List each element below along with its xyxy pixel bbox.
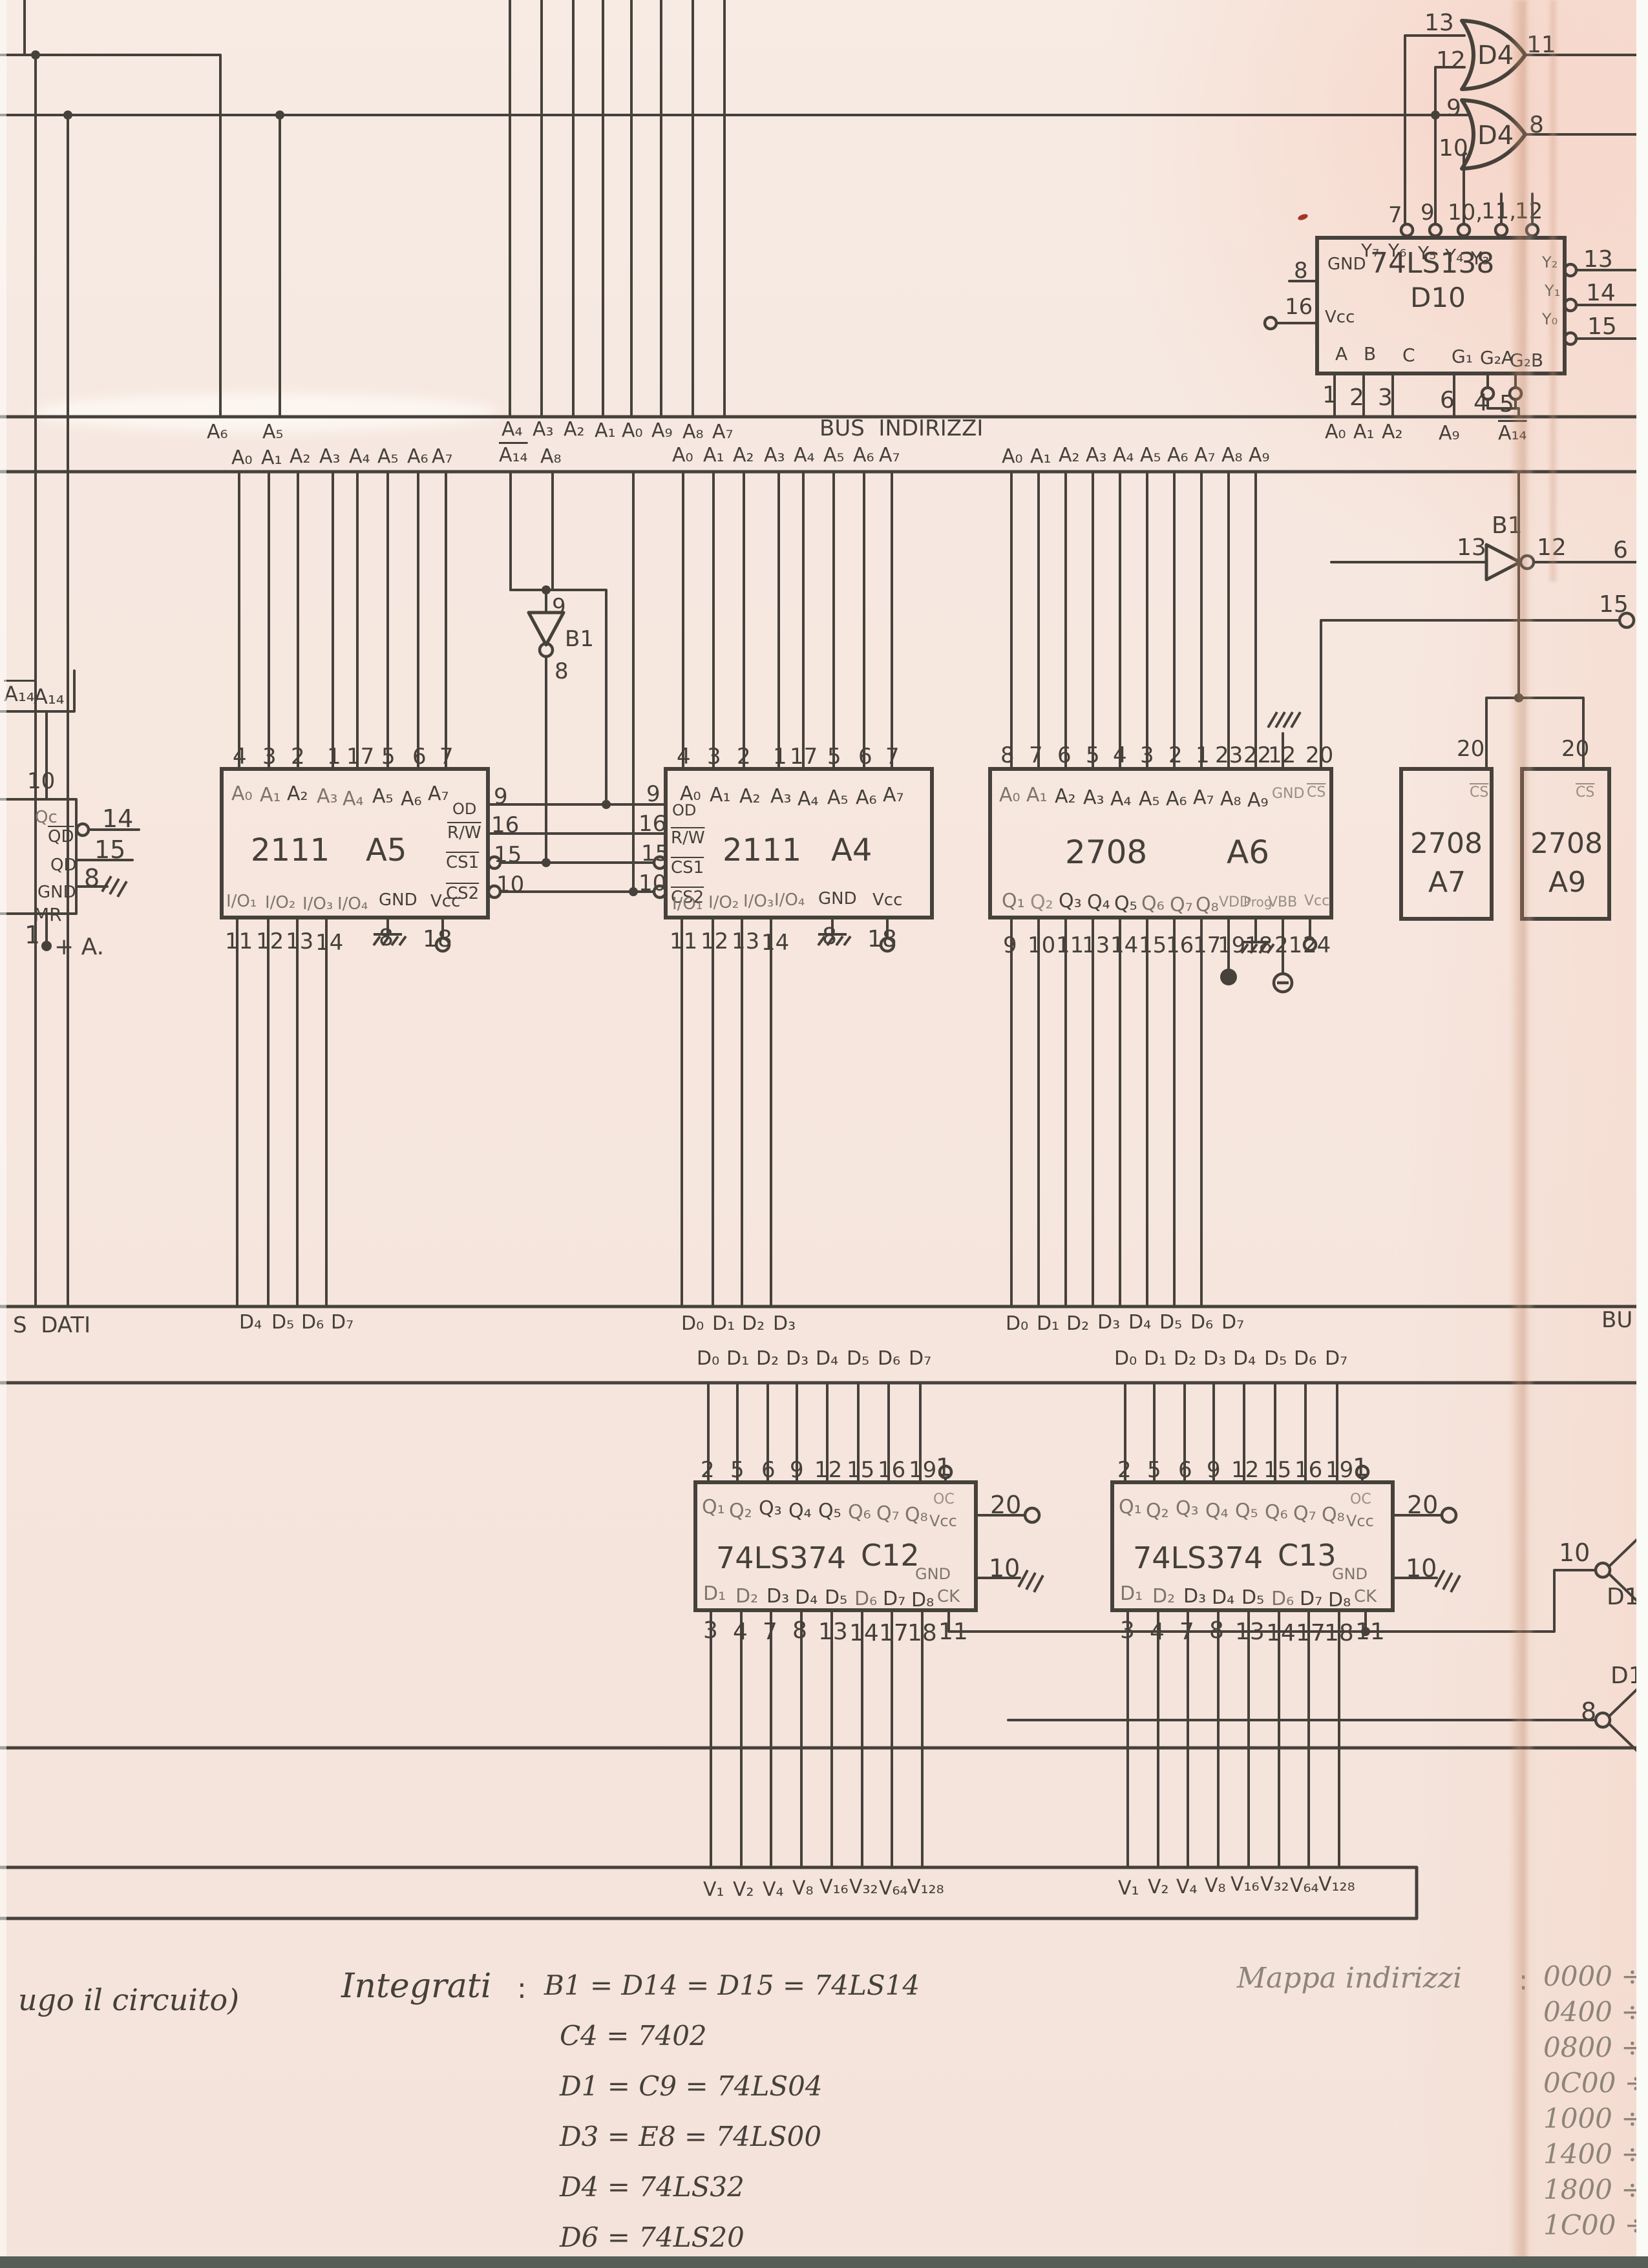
v-label: V₄: [763, 1880, 784, 1900]
c12-d: D₃: [766, 1587, 789, 1606]
map-address: 0C00 ÷: [1543, 2070, 1647, 2097]
bus-d2: D₂: [756, 1349, 779, 1369]
bus-a2: A₄: [794, 446, 815, 465]
c13-bot-pin: 8: [1209, 1619, 1224, 1643]
c13-vcc: Vcc: [1346, 1513, 1374, 1529]
d10-y: Y₁: [1545, 283, 1560, 299]
d10-bot-pin: 6: [1440, 389, 1455, 412]
d10-top-pin: 7: [1388, 204, 1402, 226]
d10-g: G₁: [1452, 348, 1473, 366]
legend-line: D6 = 74LS20: [560, 2224, 745, 2251]
a5-ctl-pin: 15: [494, 844, 522, 866]
inv-d14-pin10: 10: [1559, 1540, 1590, 1565]
a6-top-pin: 4: [1113, 744, 1127, 766]
bus-a2: A₀: [231, 448, 253, 468]
bus-a: A₀: [1325, 423, 1346, 442]
c12-ck: CK: [937, 1588, 960, 1605]
a6-bot-pin: 15: [1139, 934, 1167, 956]
bus-dati-right: BU: [1601, 1309, 1632, 1331]
bus-a2: A₈: [540, 447, 562, 467]
d10-vcc: Vcc: [1325, 309, 1355, 326]
a9-pin20: 20: [1561, 738, 1589, 760]
a6-q: Q₄: [1087, 893, 1110, 912]
c12-d: D₇: [883, 1590, 905, 1609]
bus-a2: A₂: [290, 447, 311, 467]
d10-abc: A: [1335, 345, 1347, 363]
bus-a2: A₆: [853, 446, 874, 465]
a5-cs1: CS1: [446, 854, 479, 871]
a6-q: Q₆: [1141, 894, 1165, 914]
bus-a2: A₉: [1249, 446, 1270, 465]
bus-a: A₃: [533, 420, 554, 439]
bus-a: A₈: [682, 423, 704, 442]
bus-a2: A₅: [823, 446, 845, 465]
c13-q: Q₃: [1176, 1499, 1199, 1518]
v-label: V₁₂₈: [907, 1878, 944, 1897]
map-title: Mappa indirizzi: [1237, 1964, 1462, 1993]
inv-d14-name: D1: [1607, 1586, 1640, 1609]
a6-part: 2708: [1065, 836, 1147, 868]
map-colon: :: [1519, 1967, 1528, 1994]
c13-q: Q₆: [1265, 1503, 1288, 1522]
v-label: V₁: [1118, 1879, 1139, 1898]
bus-a: A₆: [207, 423, 228, 442]
a6-top-pin: 7: [1029, 744, 1043, 766]
a4-top-pin: 4: [677, 746, 691, 768]
c12-bot-pin: 8: [792, 1619, 807, 1643]
gnd-c12-pin10: [1019, 1570, 1043, 1592]
c12-q: Q₄: [788, 1502, 812, 1521]
b1r-pin6: 6: [1613, 539, 1628, 562]
d10-y: Y₄: [1445, 247, 1463, 265]
a6-q: Q₃: [1059, 892, 1082, 911]
c13-top-pin: 15: [1263, 1459, 1291, 1481]
a5-rw: R/W: [447, 824, 481, 841]
bus-d: D₃: [773, 1314, 796, 1334]
bus-a2: A₀: [672, 446, 693, 465]
a6-a: A₂: [1055, 787, 1076, 806]
c13-q: Q₅: [1235, 1502, 1258, 1521]
cnt-qd: QD: [50, 857, 77, 874]
d10-bot-pin: 1: [1322, 384, 1337, 407]
gnd-counter-pin8: [102, 876, 127, 897]
c13-pin10: 10: [1406, 1556, 1437, 1580]
a5-bot-pin: 13: [286, 930, 313, 952]
a6-top-pin: 1: [1196, 744, 1210, 766]
v-label: V₁₂₈: [1318, 1875, 1355, 1895]
a5-top-pin: 6: [412, 746, 427, 768]
c12-gnd: GND: [915, 1566, 951, 1582]
a6-bot-pin: 17: [1193, 934, 1221, 956]
a6-q: Q₂: [1030, 893, 1053, 912]
wire15: 15: [1599, 593, 1629, 616]
d10-y: Y₀: [1542, 311, 1558, 327]
inv-d15-pin8: 8: [1581, 1699, 1596, 1724]
c13-q: Q₇: [1293, 1504, 1316, 1524]
a5-a: A₇: [428, 784, 449, 804]
d10-pin15: 15: [1587, 315, 1617, 339]
a4-a: A₃: [770, 787, 792, 806]
a5-vcc: Vcc: [430, 893, 460, 910]
a5-bot-pin: 8: [379, 927, 394, 950]
a5-part: 2111: [251, 835, 330, 866]
a5-ctl-pin: 10: [496, 874, 524, 896]
vdd-terminal: [1220, 969, 1237, 985]
bus-d: D₅: [271, 1313, 294, 1332]
v-label: V₆₄: [1290, 1876, 1319, 1896]
a4-a: A₄: [798, 790, 819, 809]
a6-q: Q₁: [1002, 892, 1025, 911]
bus-a: A₁: [595, 421, 616, 441]
a6-bot-pin: 21: [1274, 934, 1302, 956]
a4-des: A4: [831, 835, 872, 866]
a6-a: A₀: [999, 786, 1020, 805]
c13-bot-pin: 7: [1179, 1621, 1194, 1644]
bus-d: D₅: [1159, 1313, 1182, 1332]
a5-top-pin: 7: [439, 746, 454, 768]
cnt-pin8: 8: [84, 866, 100, 890]
bus-a2: A₇: [879, 446, 900, 465]
c12-top-pin: 6: [761, 1459, 776, 1481]
bus-d2: D₅: [1264, 1349, 1287, 1369]
v-label: V₈: [1205, 1876, 1226, 1896]
a4-od: OD: [672, 803, 696, 818]
c12-top-pin: 1: [936, 1455, 951, 1480]
bus-a: A₅: [262, 423, 284, 442]
c13-part: 74LS374: [1133, 1543, 1263, 1573]
a7-part: 2708: [1410, 830, 1483, 858]
c12-bot-pin: 4: [733, 1621, 748, 1644]
d10-abc: B: [1364, 345, 1376, 363]
c12-bot-pin: 17: [879, 1622, 909, 1645]
map-address: 1C00 ÷: [1543, 2212, 1647, 2239]
bus-d2: D₂: [1174, 1349, 1196, 1369]
d10-gnd: GND: [1327, 256, 1366, 273]
a9-cs: CS: [1576, 786, 1594, 800]
cnt-a14: A₁₄: [34, 686, 65, 707]
or2-pin9: 9: [1446, 97, 1461, 120]
bus-d: D₃: [1097, 1313, 1120, 1332]
a4-top-pin: 5: [827, 746, 841, 768]
d10-y: Y₇: [1361, 242, 1379, 260]
d10-g: G₂A: [1480, 349, 1514, 367]
c13-pin20: 20: [1407, 1493, 1438, 1517]
a4-ctl-pin: 16: [639, 813, 666, 835]
c12-q: Q₃: [759, 1499, 782, 1518]
a4-top-pin: 6: [858, 746, 872, 768]
a4-cs1: CS1: [671, 859, 704, 876]
map-address: 0400 ÷: [1543, 1999, 1643, 2026]
a6-top-pin: 2: [1168, 744, 1183, 766]
bus-d2: D₁: [726, 1349, 749, 1369]
c12-top-pin: 15: [847, 1459, 874, 1481]
a5-top-pin: 1: [327, 746, 341, 768]
a5-top-pin: 3: [262, 746, 277, 768]
c13-bot-pin: 4: [1150, 1621, 1165, 1644]
a6-bot-pin: 19: [1218, 934, 1245, 956]
a6-top-pin: 6: [1057, 744, 1072, 766]
b1m-pin8: 8: [555, 660, 569, 682]
bus-d2: D₆: [1294, 1349, 1316, 1369]
a4-vcc: Vcc: [872, 892, 902, 908]
bus-d2: D₀: [697, 1349, 719, 1369]
a6-a: A₆: [1166, 790, 1187, 809]
bus-d: D₄: [239, 1313, 262, 1332]
d10-bot-pin: 2: [1349, 386, 1364, 410]
c12-d: D₅: [825, 1588, 847, 1608]
legend-line: D1 = C9 = 74LS04: [560, 2073, 823, 2100]
a5-bot-pin: 11: [225, 930, 253, 952]
cnt-pin10: 10: [27, 770, 55, 792]
c13-top-pin: 5: [1147, 1459, 1161, 1481]
a4-io: I/O₁: [672, 896, 703, 912]
bus-a2: A₅: [1140, 446, 1161, 465]
a9-part: 2708: [1530, 830, 1603, 858]
map-address: 0000 ÷: [1543, 1963, 1643, 1990]
chip-outlines: [222, 238, 1609, 1610]
c13-d: D₄: [1212, 1588, 1234, 1608]
bus-d2: D₆: [878, 1349, 900, 1369]
d10-bot-pin: 3: [1378, 386, 1393, 410]
a4-io: I/O₃: [743, 893, 774, 910]
a4-ctl-pin: 9: [646, 783, 660, 805]
c12-oc: OC: [933, 1493, 955, 1507]
d10-top-pin: 10,: [1448, 202, 1483, 224]
or1-pin11: 11: [1527, 34, 1556, 57]
a4-part: 2111: [723, 835, 801, 866]
gnd-c13-pin10: [1435, 1570, 1460, 1592]
d10-abc: C: [1402, 346, 1415, 364]
a6-top-pin: 12: [1268, 744, 1296, 766]
a6-des: A6: [1227, 836, 1269, 868]
c12-vcc: Vcc: [929, 1513, 957, 1529]
c13-top-pin: 9: [1207, 1459, 1221, 1481]
bus-d2: D₃: [1203, 1349, 1226, 1369]
cnt-plus-a: + A.: [54, 936, 104, 959]
bus-a: A₁: [1353, 423, 1375, 442]
c12-d: D₄: [795, 1588, 818, 1608]
a6-bot-pin: 11: [1056, 934, 1084, 956]
d10-y: Y₃: [1471, 249, 1489, 268]
bus-a: A₄: [502, 420, 523, 439]
v-label: V₂: [1148, 1878, 1169, 1897]
a4-top-pin: 7: [885, 746, 900, 768]
c13-des: C13: [1278, 1540, 1336, 1570]
a5-a: A₄: [343, 790, 364, 809]
a6-q: Q₈: [1196, 896, 1219, 915]
c12-bot-pin: 13: [818, 1621, 848, 1644]
legend-title: Integrati: [341, 1969, 491, 2003]
a6-bot-pin: 10: [1028, 934, 1055, 956]
bus-d: D₇: [331, 1313, 354, 1332]
bus-d: D₄: [1128, 1313, 1151, 1332]
a6-q: Q₇: [1170, 896, 1193, 915]
bus-a2: A₇: [432, 447, 453, 467]
a6-bot-pin: 13: [1082, 934, 1110, 956]
c13-d: D₂: [1152, 1587, 1175, 1606]
c13-bot-pin: 13: [1235, 1621, 1265, 1644]
c12-d: D₈: [911, 1591, 934, 1610]
a5-top-pin: 5: [381, 746, 396, 768]
bus-a2: A₇: [1194, 446, 1216, 465]
a6-bot-pin: 18: [1245, 934, 1273, 956]
c12-d: D₆: [854, 1590, 877, 1609]
a7-cs: CS: [1470, 786, 1488, 800]
c12-top-pin: 5: [730, 1459, 745, 1481]
c13-bot-pin: 11: [1355, 1621, 1385, 1644]
a5-ctl-pin: 16: [491, 814, 519, 836]
a6-bot-pin: 24: [1303, 934, 1331, 956]
c12-bot-pin: 14: [849, 1622, 879, 1645]
or1-pin13: 13: [1424, 12, 1454, 35]
c12-d: D₂: [735, 1587, 758, 1606]
c12-bot-pin: 7: [763, 1621, 777, 1644]
c12-part: 74LS374: [716, 1543, 846, 1573]
bus-d2: D₇: [909, 1349, 931, 1369]
a4-top-pin: 3: [707, 746, 721, 768]
bus-a2: A₃: [1086, 446, 1107, 465]
a5-bot-pin: 12: [256, 930, 284, 952]
a5-a: A₂: [287, 784, 308, 804]
a5-top-pin: 4: [233, 746, 247, 768]
bus-a2: A₀: [1002, 447, 1023, 467]
a4-ctl-pin: 10: [639, 872, 666, 894]
a4-gnd: GND: [818, 890, 857, 907]
or2-pin8: 8: [1529, 114, 1544, 137]
c13-oc: OC: [1350, 1493, 1371, 1507]
bus-d2: D₄: [1233, 1349, 1256, 1369]
bus-d: D₀: [681, 1314, 704, 1334]
bus-a2: A₄: [1113, 446, 1134, 465]
bus-a2: A₁: [261, 448, 282, 468]
bus-a2: A₁₄: [499, 446, 528, 465]
bus-a2: A₁: [1030, 447, 1051, 467]
d10-pin8: 8: [1294, 260, 1308, 282]
or1-pin12: 12: [1436, 49, 1466, 72]
c12-bot-pin: 3: [703, 1619, 718, 1643]
a4-top-pin: 1: [773, 746, 787, 768]
bus-a: A₉: [1439, 424, 1460, 443]
note-circuito: ugo il circuito): [18, 1985, 239, 2015]
a6-cs: CS: [1307, 786, 1326, 800]
v-label: V₃₂: [849, 1878, 878, 1897]
bus-d: D₁: [712, 1314, 735, 1334]
bus-a2: A₄: [349, 447, 370, 467]
a5-a: A₃: [317, 787, 338, 806]
bus-a: A₇: [712, 423, 734, 442]
bus-d2: D₃: [786, 1349, 808, 1369]
b1m-name: B1: [565, 628, 594, 650]
a4-bot-pin: 12: [701, 930, 728, 952]
c12-top-pin: 19: [909, 1459, 936, 1481]
cnt-gnd: GND: [37, 884, 76, 901]
bus-a: A₉: [651, 421, 673, 441]
d10-y: Y₆: [1388, 242, 1406, 260]
bus-a: A₁₄: [1498, 424, 1527, 443]
a5-io: I/O₃: [302, 896, 333, 912]
bus-a2: A₅: [377, 447, 399, 467]
map-address: 1400 ÷: [1543, 2141, 1643, 2168]
c12-pin10: 10: [989, 1556, 1020, 1580]
c12-d: D₁: [703, 1584, 726, 1604]
schematic-drawing: [0, 0, 1648, 2268]
b1m-pin9: 9: [552, 596, 566, 618]
or2-name: D4: [1477, 123, 1514, 149]
c12-top-pin: 2: [701, 1459, 715, 1481]
cnt-a14n: A₁₄: [4, 684, 35, 704]
a4-a: A₇: [883, 786, 904, 805]
a5-a: A₁: [260, 786, 281, 805]
map-address: 1800 ÷: [1543, 2176, 1643, 2203]
bus-a: A₂: [564, 420, 585, 439]
a4-a: A₅: [827, 788, 849, 808]
a6-top-pin: 23: [1215, 744, 1243, 766]
a4-top-pin: 2: [737, 746, 751, 768]
a6-top-pin: 8: [1000, 744, 1015, 766]
or2-pin10: 10: [1439, 137, 1468, 160]
c12-q: Q₅: [818, 1502, 841, 1521]
v-label: V₃₂: [1260, 1875, 1289, 1895]
bus-d: D₀: [1006, 1314, 1028, 1334]
a5-des: A5: [366, 835, 407, 866]
bus-a2: A₃: [319, 447, 341, 467]
a4-a: A₆: [856, 788, 877, 808]
a4-rw: R/W: [671, 830, 705, 846]
c13-d: D₆: [1271, 1590, 1294, 1609]
bus-d2: D₅: [847, 1349, 869, 1369]
inverter-b1-right: [1486, 545, 1520, 580]
bus-title: BUS INDIRIZZI: [819, 417, 983, 439]
v-label: V₁: [703, 1880, 724, 1900]
a6-bot-pin: 9: [1003, 934, 1017, 956]
c13-q: Q₂: [1146, 1502, 1169, 1521]
a6-gnd: GND: [1272, 787, 1304, 801]
c12-des: C12: [861, 1540, 920, 1570]
a6-a: A₈: [1220, 790, 1241, 809]
legend-colon: :: [517, 1975, 527, 2003]
c13-gnd: GND: [1332, 1566, 1368, 1582]
a4-io: I/O₄: [774, 892, 805, 908]
d10-pin14: 14: [1586, 282, 1616, 305]
cnt-pin15: 15: [94, 837, 125, 862]
c13-d: D₈: [1328, 1591, 1351, 1610]
bus-d2: D₁: [1144, 1349, 1167, 1369]
c12-top-pin: 16: [878, 1459, 905, 1481]
bus-d: D₆: [1190, 1313, 1213, 1332]
bus-d2: D₀: [1114, 1349, 1137, 1369]
c13-bot-pin: 14: [1266, 1622, 1296, 1645]
a5-io: I/O₂: [265, 894, 295, 911]
d10-bot-pin: 4: [1474, 392, 1488, 415]
cnt-qc: Qc: [35, 809, 58, 826]
bus-a2: A₆: [407, 447, 428, 467]
a9-des: A9: [1548, 868, 1586, 897]
c12-pin20: 20: [990, 1493, 1021, 1517]
d10-pin13: 13: [1583, 248, 1613, 271]
c13-ck: CK: [1354, 1588, 1377, 1605]
a4-a: A₁: [710, 786, 731, 805]
d10-top-pin: 12: [1515, 200, 1543, 222]
bus-d: D₇: [1221, 1313, 1244, 1332]
c12-q: Q₇: [876, 1504, 900, 1524]
d10-y: Y₅: [1418, 244, 1436, 262]
a4-io: I/O₂: [708, 894, 739, 911]
d10-bot-pin: 5: [1499, 393, 1514, 416]
a7-pin20: 20: [1457, 738, 1484, 760]
a6-a: A₉: [1247, 791, 1269, 810]
c12-top-pin: 9: [790, 1459, 804, 1481]
d10-g: G₂B: [1510, 352, 1543, 370]
